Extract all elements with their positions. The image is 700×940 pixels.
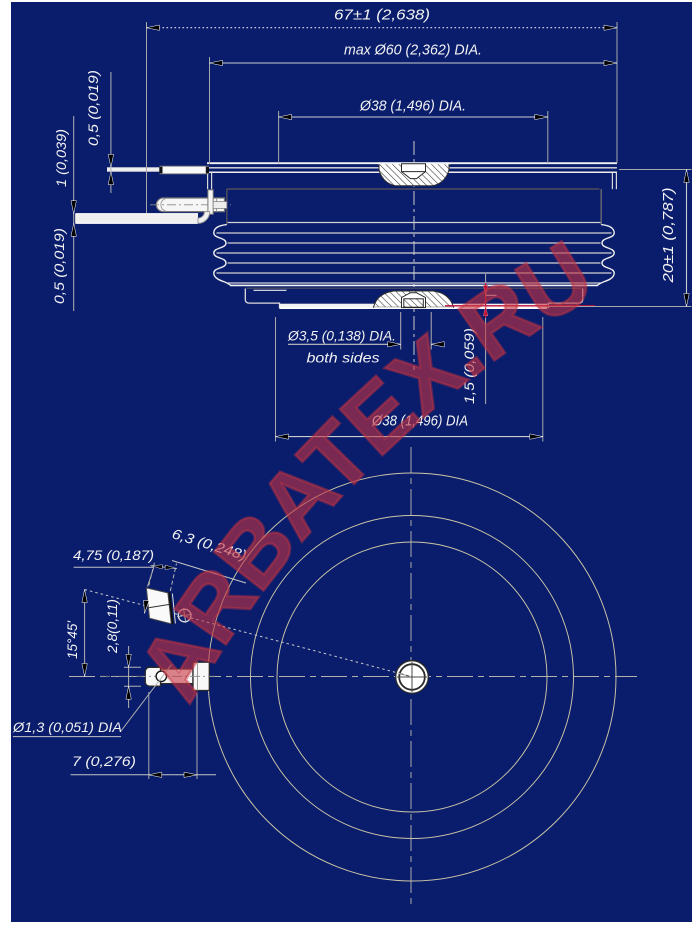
svg-text:max Ø60 (2,362) DIA.: max Ø60 (2,362) DIA. (344, 42, 482, 59)
svg-text:Ø3,5 (0,138) DIA.: Ø3,5 (0,138) DIA. (287, 328, 396, 344)
svg-text:15°45': 15°45' (64, 620, 80, 659)
svg-text:4,75 (0,187): 4,75 (0,187) (73, 547, 154, 563)
svg-text:2,8(0,11): 2,8(0,11) (104, 599, 120, 654)
svg-text:0,5 (0,019): 0,5 (0,019) (51, 228, 67, 304)
svg-text:7 (0,276): 7 (0,276) (72, 753, 136, 769)
svg-text:1 (0,039): 1 (0,039) (53, 129, 69, 187)
svg-text:Ø38 (1,496) DIA.: Ø38 (1,496) DIA. (359, 98, 466, 115)
svg-text:67±1 (2,638): 67±1 (2,638) (334, 7, 430, 24)
svg-text:Ø1,3 (0,051) DIA: Ø1,3 (0,051) DIA (12, 719, 122, 735)
svg-text:0,5 (0,019): 0,5 (0,019) (85, 70, 101, 146)
svg-text:20±1 (0,787): 20±1 (0,787) (660, 188, 677, 284)
